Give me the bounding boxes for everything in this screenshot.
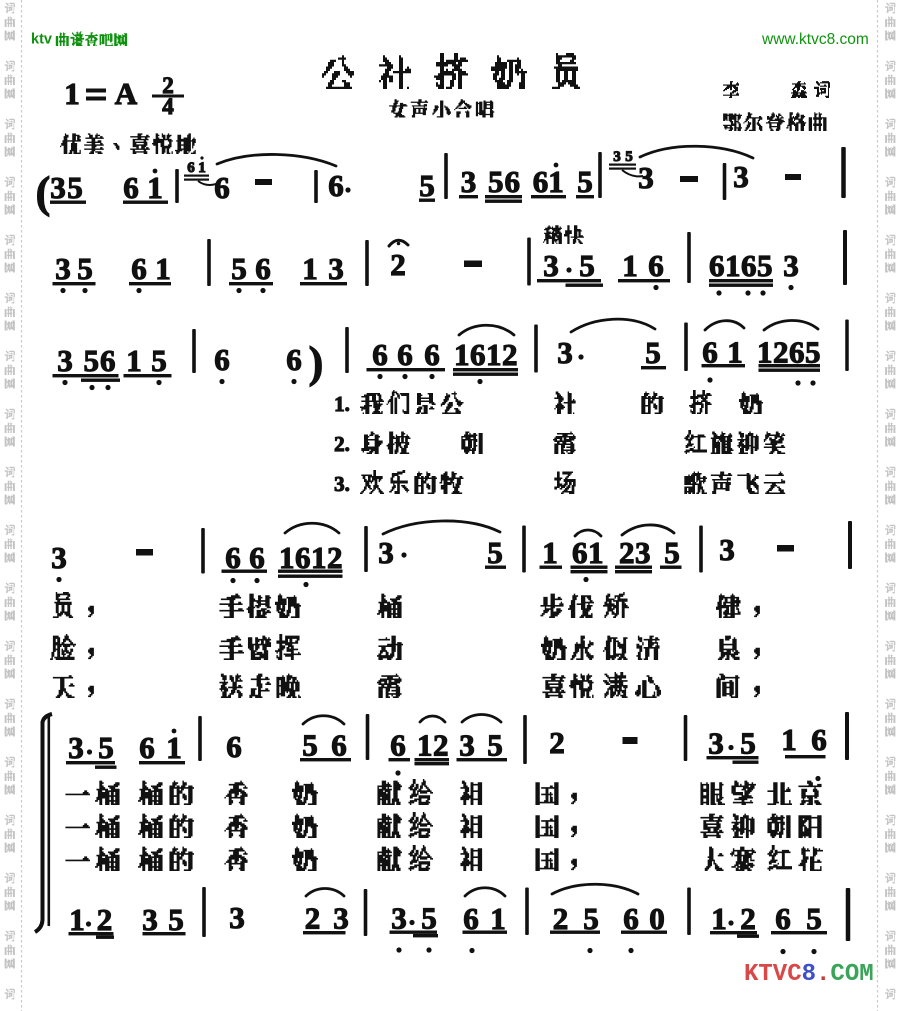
- svg-text:5: 5: [487, 535, 503, 570]
- svg-text:6: 6: [372, 337, 388, 372]
- svg-text:6: 6: [131, 251, 147, 286]
- svg-text:1: 1: [542, 535, 558, 570]
- svg-text:3: 3: [55, 251, 71, 286]
- svg-text:5: 5: [625, 149, 633, 165]
- svg-text:6: 6: [648, 248, 664, 283]
- svg-text:1: 1: [166, 730, 182, 765]
- svg-text:23: 23: [619, 535, 651, 570]
- svg-text:5: 5: [67, 170, 83, 205]
- svg-text:6: 6: [424, 337, 440, 372]
- svg-text:3: 3: [733, 159, 749, 194]
- svg-text:6: 6: [390, 728, 406, 763]
- svg-text:3: 3: [613, 149, 621, 165]
- svg-text:5: 5: [77, 251, 93, 286]
- svg-text:2: 2: [97, 902, 113, 937]
- svg-text:6: 6: [255, 251, 271, 286]
- svg-text:1612: 1612: [454, 337, 518, 372]
- svg-text:3: 3: [557, 335, 573, 370]
- svg-text:3: 3: [68, 730, 84, 765]
- svg-text:6: 6: [328, 168, 344, 203]
- svg-text:3: 3: [783, 248, 799, 283]
- svg-text:61: 61: [572, 535, 604, 570]
- svg-text:3: 3: [543, 248, 559, 283]
- svg-text:3: 3: [50, 170, 66, 205]
- svg-text:12: 12: [417, 728, 449, 763]
- svg-text:6: 6: [139, 730, 155, 765]
- svg-text:5: 5: [302, 728, 318, 763]
- svg-text:3: 3: [229, 900, 245, 935]
- svg-text:1: 1: [781, 722, 797, 757]
- svg-text:3: 3: [142, 902, 158, 937]
- svg-text:6: 6: [187, 160, 195, 176]
- svg-text:5: 5: [806, 901, 822, 936]
- svg-text:6: 6: [286, 342, 302, 377]
- svg-text:5: 5: [231, 251, 247, 286]
- svg-text:6: 6: [331, 728, 347, 763]
- svg-text:1: 1: [147, 170, 163, 205]
- svg-text:5: 5: [98, 730, 114, 765]
- svg-text:3: 3: [391, 901, 407, 936]
- svg-text:5: 5: [579, 248, 595, 283]
- svg-text:1.: 1.: [334, 392, 350, 416]
- svg-text:5: 5: [664, 535, 680, 570]
- svg-text:6: 6: [775, 901, 791, 936]
- svg-text:6: 6: [226, 729, 242, 764]
- svg-text:3: 3: [719, 532, 735, 567]
- svg-text:A: A: [115, 76, 138, 111]
- svg-text:3.: 3.: [334, 472, 350, 496]
- svg-text:6: 6: [811, 722, 827, 757]
- svg-text:2: 2: [740, 901, 756, 936]
- svg-text:2: 2: [549, 725, 565, 760]
- svg-text:1: 1: [548, 164, 564, 199]
- svg-text:5: 5: [487, 728, 503, 763]
- svg-text:2.: 2.: [334, 432, 350, 456]
- svg-text:6: 6: [533, 164, 549, 199]
- svg-text:5: 5: [151, 343, 167, 378]
- svg-text:ktv: ktv: [31, 32, 52, 48]
- svg-text:56: 56: [84, 343, 117, 378]
- svg-text:3: 3: [459, 728, 475, 763]
- svg-text:1: 1: [155, 251, 171, 286]
- svg-text:5: 5: [419, 168, 435, 203]
- svg-text:2: 2: [305, 901, 321, 936]
- svg-text:5: 5: [645, 335, 661, 370]
- svg-text:6: 6: [397, 337, 413, 372]
- svg-text:(: (: [36, 168, 51, 217]
- svg-text:6: 6: [214, 342, 230, 377]
- svg-text:): ): [309, 338, 324, 387]
- svg-text:2: 2: [390, 247, 406, 282]
- svg-text:1: 1: [69, 902, 85, 937]
- svg-text:www.ktvc8.com: www.ktvc8.com: [761, 31, 869, 48]
- svg-text:1: 1: [198, 160, 206, 176]
- svg-text:1: 1: [64, 76, 80, 111]
- svg-text:1: 1: [711, 901, 727, 936]
- svg-text:5: 5: [577, 164, 593, 199]
- svg-text:3: 3: [461, 164, 477, 199]
- svg-text:56: 56: [488, 164, 521, 199]
- svg-text:KTVC8.COM: KTVC8.COM: [744, 961, 874, 988]
- svg-text:5: 5: [421, 901, 437, 936]
- svg-text:6: 6: [214, 170, 230, 205]
- svg-text:3: 3: [708, 726, 724, 761]
- svg-text:3: 3: [328, 251, 344, 286]
- svg-text:5: 5: [740, 726, 756, 761]
- svg-text:4: 4: [162, 94, 174, 119]
- svg-text:6: 6: [123, 170, 139, 205]
- svg-text:1: 1: [302, 251, 318, 286]
- svg-text:3: 3: [51, 540, 67, 575]
- svg-text:1: 1: [126, 343, 142, 378]
- svg-text:3: 3: [638, 160, 654, 195]
- svg-text:6165: 6165: [709, 248, 773, 283]
- svg-text:3: 3: [378, 535, 394, 570]
- svg-text:3: 3: [333, 901, 349, 936]
- svg-text:5: 5: [168, 902, 184, 937]
- svg-text:3: 3: [57, 343, 73, 378]
- svg-text:1: 1: [622, 248, 638, 283]
